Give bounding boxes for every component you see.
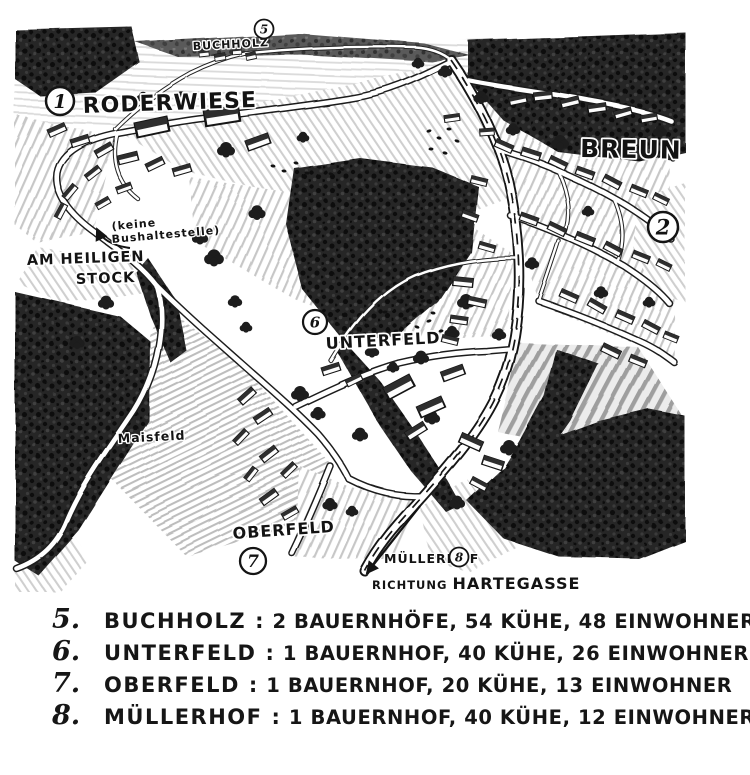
legend-number: 7.	[52, 668, 104, 699]
marker-number: 7	[247, 552, 259, 572]
marker-breun: 2	[648, 212, 678, 242]
building	[117, 151, 138, 164]
legend-number: 5.	[52, 604, 104, 635]
legend-entry-muellerhof: 8. MÜLLERHOF : 1 BAUERNHOF, 40 KÜHE, 12 …	[52, 700, 712, 732]
legend-number: 6.	[52, 636, 104, 667]
legend-number: 8.	[52, 700, 104, 731]
tree	[352, 428, 368, 442]
marker-unterfeld: 6	[303, 310, 327, 334]
tree	[98, 296, 114, 310]
legend-details: 1 BAUERNHOF, 40 KÜHE, 12 EINWOHNER	[289, 706, 750, 729]
legend-place-name: MÜLLERHOF	[104, 705, 263, 729]
building	[534, 91, 553, 101]
legend-entry-unterfeld: 6. UNTERFELD : 1 BAUERNHOF, 40 KÜHE, 26 …	[52, 636, 712, 668]
tree	[310, 407, 325, 420]
building	[441, 364, 466, 381]
label-am-heiligen-stock-line2: STOCK	[76, 270, 136, 288]
marker-number: 8	[455, 551, 464, 565]
legend-details: 1 BAUERNHOF, 20 KÜHE, 13 EINWOHNER	[266, 674, 732, 697]
marker-roderwiese: 1	[46, 87, 74, 115]
legend-details: 2 BAUERNHÖFE, 54 KÜHE, 48 EINWOHNER	[273, 610, 750, 633]
building	[321, 362, 341, 375]
scanned-village-map-page: RODERWIESE BUCHHOLZ BREUN (keine Bushalt…	[0, 0, 750, 775]
label-breun: BREUN	[580, 134, 682, 165]
legend-entry-buchholz: 5. BUCHHOLZ : 2 BAUERNHÖFE, 54 KÜHE, 48 …	[52, 604, 712, 636]
marker-number: 6	[310, 314, 321, 332]
legend-separator: :	[272, 705, 280, 729]
marker-number: 2	[655, 215, 671, 240]
marker-number: 1	[53, 91, 66, 113]
tree	[240, 322, 253, 333]
building	[480, 128, 495, 136]
building	[245, 52, 256, 61]
building	[482, 455, 505, 470]
legend-separator: :	[255, 609, 263, 633]
marker-number: 5	[260, 23, 268, 37]
legend-details: 1 BAUERNHOF, 40 KÜHE, 26 EINWOHNER	[283, 642, 749, 665]
building	[453, 277, 474, 288]
village-map-illustration: RODERWIESE BUCHHOLZ BREUN (keine Bushalt…	[0, 0, 750, 600]
marker-oberfeld: 7	[240, 548, 266, 574]
legend-separator: :	[249, 673, 257, 697]
marker-muellerhof: 8	[450, 548, 469, 567]
legend-place-name: OBERFELD	[104, 673, 240, 697]
legend: 5. BUCHHOLZ : 2 BAUERNHÖFE, 54 KÜHE, 48 …	[52, 604, 712, 732]
label-hartegasse: HARTEGASSE	[452, 574, 580, 593]
building	[444, 113, 460, 122]
legend-place-name: BUCHHOLZ	[104, 609, 246, 633]
building	[214, 53, 226, 62]
marker-buchholz: 5	[255, 20, 274, 39]
tree	[228, 295, 242, 307]
building	[383, 375, 414, 400]
building	[145, 156, 165, 171]
label-richtung-hartegasse: RICHTUNG HARTEGASSE	[372, 574, 580, 593]
label-richtung: RICHTUNG	[372, 578, 452, 592]
legend-separator: :	[265, 641, 273, 665]
legend-place-name: UNTERFELD	[104, 641, 256, 665]
legend-entry-oberfeld: 7. OBERFELD : 1 BAUERNHOF, 20 KÜHE, 13 E…	[52, 668, 712, 700]
